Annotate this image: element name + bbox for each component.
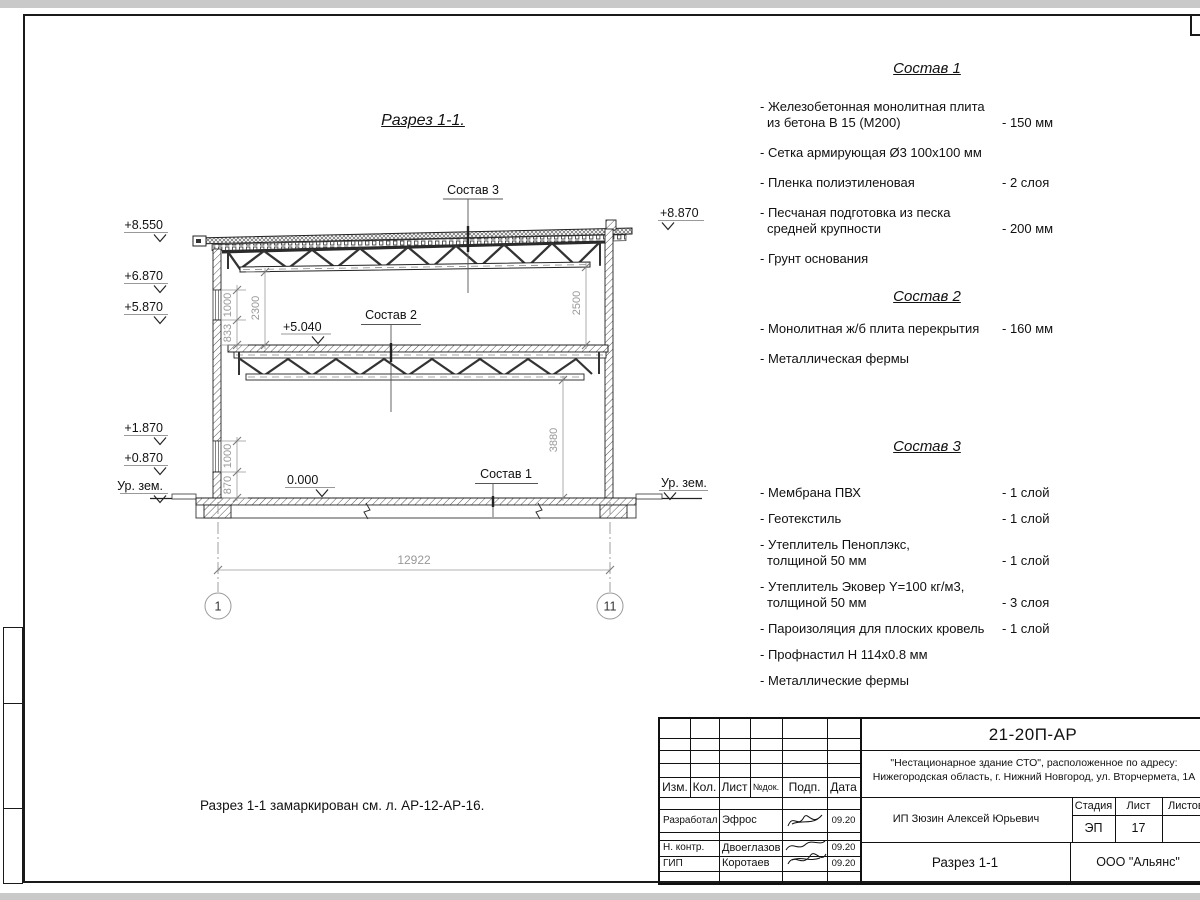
col-header-list: Лист (719, 777, 750, 797)
dim-2500: 2500 (571, 291, 583, 315)
role-label: Н. контр. (663, 840, 718, 856)
role-label: Разработал (663, 809, 718, 832)
roof-assembly (193, 228, 632, 272)
leader-label-sostav2: Состав 2 (365, 308, 417, 322)
composition-title: Состав 2 (760, 288, 1094, 305)
elevation-arrow-icon (154, 438, 166, 445)
signature (782, 838, 828, 872)
dim-2300: 2300 (250, 296, 262, 320)
section-drawing: 1000 833 2300 2500 3880 1000 870 12922 (0, 0, 760, 700)
floor-slab (228, 345, 608, 352)
elevation-arrow-icon (662, 223, 674, 230)
list-item: - Утеплитель Пеноплэкс,толщиной 50 мм - … (760, 537, 1094, 569)
sheet-title: Разрез 1-1 (860, 842, 1070, 883)
leader-label-sostav3: Состав 3 (447, 183, 499, 197)
company-name: ООО "Альянс" (1070, 842, 1200, 883)
stage-value: ЭП (1072, 815, 1115, 842)
list-item: - Железобетонная монолитная плитаиз бето… (760, 99, 1094, 131)
footing (204, 505, 231, 518)
window-opening (213, 441, 221, 472)
footing (600, 505, 627, 518)
person-name: Коротаев (722, 856, 781, 871)
axis-label-11: 11 (604, 600, 617, 614)
level-label-0000: 0.000 (287, 473, 318, 487)
floor-truss-webs (240, 359, 592, 376)
sign-date: 09.20 (827, 840, 860, 856)
elevation-arrow-icon (154, 286, 166, 293)
person-name: Эфрос (722, 809, 781, 832)
dim-bot-870: 870 (222, 476, 234, 494)
list-item: - Металлическая фермы (760, 351, 1094, 367)
signature (784, 810, 826, 832)
col-header-izm: Изм. (660, 777, 690, 797)
list-item: - Грунт основания (760, 251, 1094, 267)
right-wall (605, 220, 616, 498)
col-header-stage: Стадия (1072, 797, 1115, 815)
col-header-kol: Кол. (690, 777, 719, 797)
window-opening (213, 290, 221, 320)
list-item: - Песчаная подготовка из пескасредней кр… (760, 205, 1094, 237)
col-header-sheets: Листов (1168, 797, 1200, 815)
list-item: - Геотекстиль - 1 слой (760, 511, 1094, 527)
client-name: ИП Зюзин Алексей Юрьевич (860, 797, 1072, 842)
composition-list-1: Состав 1 - Железобетонная монолитная пли… (760, 60, 1094, 281)
floor-on-ground (196, 498, 636, 505)
col-header-ndok: №док. (750, 777, 782, 797)
dim-top-1000: 1000 (222, 293, 234, 317)
ground-level-label: Ур. зем. (661, 476, 707, 490)
dim-3880: 3880 (548, 428, 560, 452)
composition-list-3: Состав 3 - Мембрана ПВХ - 1 слой - Геоте… (760, 438, 1094, 699)
sheet-margin-box (3, 703, 23, 809)
col-header-sheet: Лист (1115, 797, 1162, 815)
col-header-data: Дата (827, 777, 860, 797)
list-item: - Профнастил Н 114х0.8 мм (760, 647, 1094, 663)
elevation-label: +0.870 (124, 451, 163, 465)
drawing-note: Разрез 1-1 замаркирован см. л. АР-12-АР-… (200, 798, 484, 813)
dim-bot-1000: 1000 (222, 444, 234, 468)
elevation-label: +8.870 (660, 206, 699, 220)
list-item: - Сетка армирующая Ø3 100х100 мм (760, 145, 1094, 161)
role-label: ГИП (663, 856, 718, 871)
elevation-label: +8.550 (124, 218, 163, 232)
list-item: - Утеплитель Эковер Y=100 кг/м3,толщиной… (760, 579, 1094, 611)
dim-span: 12922 (397, 553, 431, 567)
elevation-marks-left: +8.550 +6.870 +5.870 +1.870 +0.870 Ур. з… (117, 218, 168, 503)
elevation-arrow-icon (154, 235, 166, 242)
leader-label-sostav1: Состав 1 (480, 467, 532, 481)
elevation-arrow-icon (312, 337, 324, 344)
list-item: - Металлические фермы (760, 673, 1094, 689)
title-block: Изм. Кол. Лист №док. Подп. Дата Разработ… (658, 717, 1200, 885)
elevation-label: +6.870 (124, 269, 163, 283)
person-name: Двоеглазов (722, 840, 781, 856)
composition-title: Состав 3 (760, 438, 1094, 455)
sign-date: 09.20 (827, 809, 860, 832)
list-item: - Пленка полиэтиленовая - 2 слоя (760, 175, 1094, 191)
elevation-label: +1.870 (124, 421, 163, 435)
elevation-arrow-icon (154, 468, 166, 475)
drawing-sheet: { "colors": { "line": "#1a1a1a", "dim_te… (0, 0, 1200, 900)
project-description: "Нестационарное здание СТО", расположенн… (864, 753, 1200, 798)
left-wall (213, 249, 221, 498)
axis-label-1: 1 (215, 600, 222, 614)
dim-top-833: 833 (222, 324, 234, 342)
ground-level-label: Ур. зем. (117, 479, 163, 493)
sheet-corner-box (1190, 14, 1200, 36)
elevation-arrow-icon (154, 317, 166, 324)
list-item: - Пароизоляция для плоских кровель - 1 с… (760, 621, 1094, 637)
page-bottom-edge (0, 893, 1200, 900)
elevation-label: +5.870 (124, 300, 163, 314)
composition-title: Состав 1 (760, 60, 1094, 77)
list-item: - Мембрана ПВХ - 1 слой (760, 485, 1094, 501)
col-header-podp: Подп. (782, 777, 827, 797)
level-label-5040: +5.040 (283, 320, 322, 334)
elevation-marks-right: +8.870 Ур. зем. (658, 206, 708, 500)
sheet-number: 17 (1115, 815, 1162, 842)
list-item: - Монолитная ж/б плита перекрытия - 160 … (760, 321, 1094, 337)
composition-list-2: Состав 2 - Монолитная ж/б плита перекрыт… (760, 288, 1094, 381)
document-code: 21-20П-АР (860, 719, 1200, 750)
elevation-arrow-icon (316, 490, 328, 497)
sign-date: 09.20 (827, 856, 860, 871)
sheet-margin-box (3, 808, 23, 884)
floor-assembly (228, 345, 608, 380)
